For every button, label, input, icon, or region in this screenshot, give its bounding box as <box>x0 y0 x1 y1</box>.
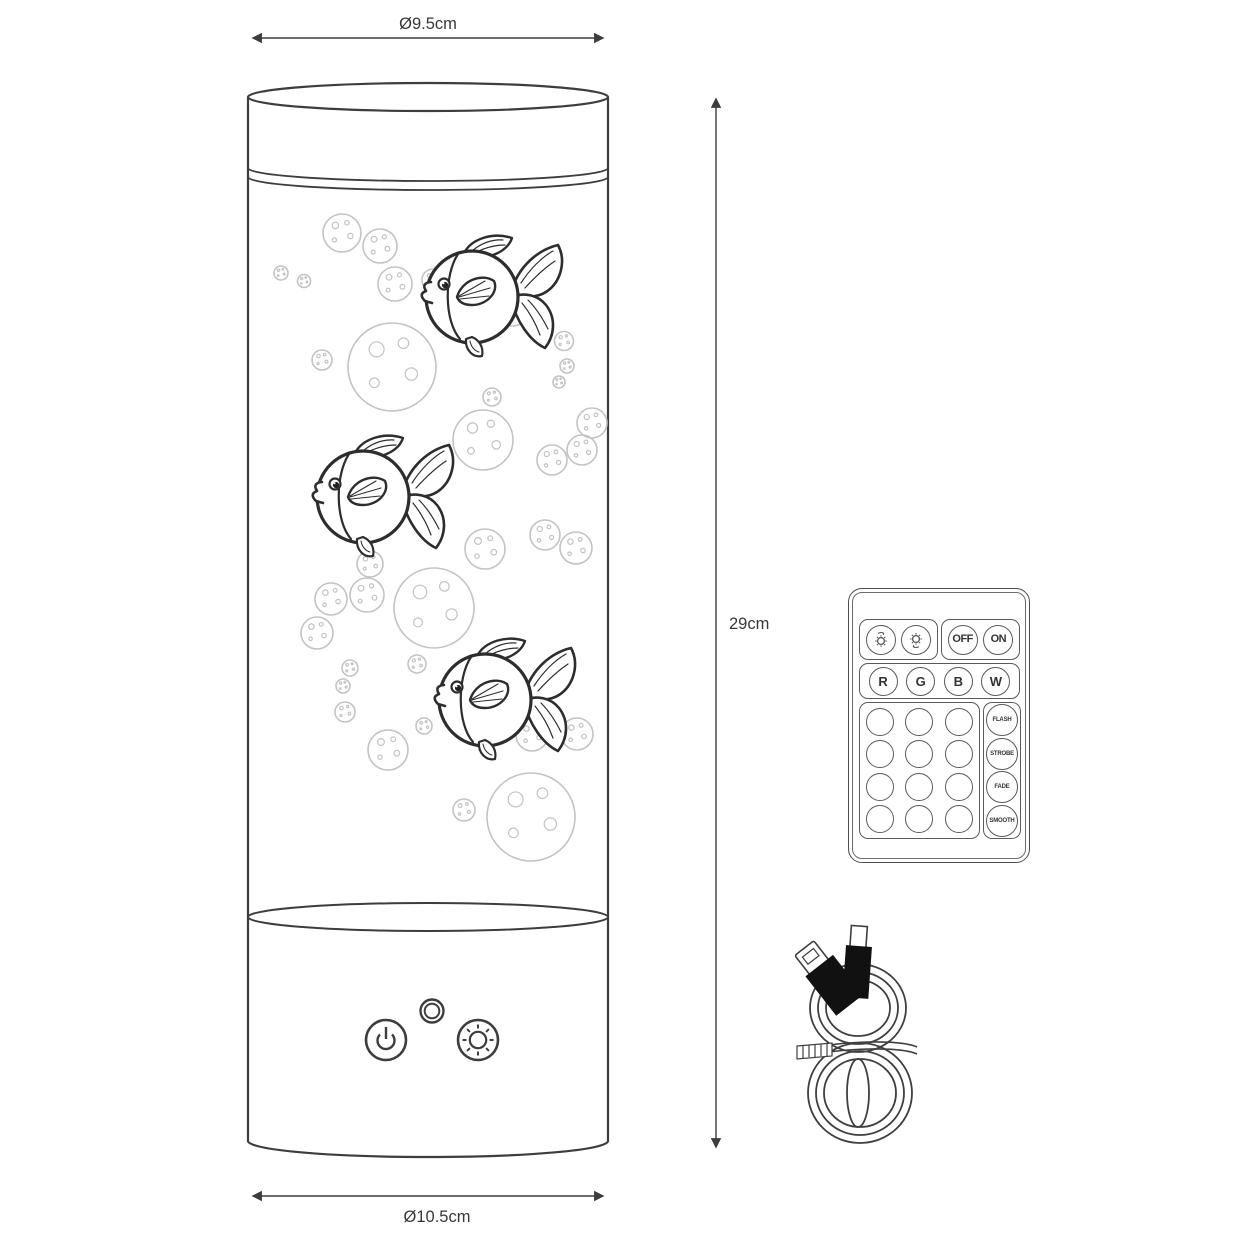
green-button-label: G <box>916 675 926 688</box>
blue-button: B <box>944 667 973 696</box>
color-shade-button <box>866 773 894 801</box>
remote-power-group: OFF ON <box>941 619 1020 660</box>
lamp-tube <box>248 83 608 1141</box>
line-art-layer: Ø9.5cm 29cm Ø10.5cm <box>0 0 1240 1240</box>
white-button-label: W <box>990 675 1002 688</box>
smooth-button-label: SMOOTH <box>989 818 1014 824</box>
dimension-top-diameter: Ø9.5cm <box>253 15 603 38</box>
dimension-bottom-diameter: Ø10.5cm <box>253 1196 603 1226</box>
color-shade-button <box>905 805 933 833</box>
top-diameter-label: Ø9.5cm <box>399 15 457 33</box>
base-bottom-edge <box>248 1141 608 1157</box>
color-shade-button <box>945 740 973 768</box>
smooth-button: SMOOTH <box>986 805 1018 837</box>
base-top-edge <box>248 903 608 931</box>
sun-up-icon <box>871 630 891 650</box>
color-shade-button <box>945 805 973 833</box>
lamp-top-lid <box>248 83 608 111</box>
brightness-up-button <box>866 625 896 655</box>
red-button: R <box>869 667 898 696</box>
remote-effects-column: FLASH STROBE FADE SMOOTH <box>983 702 1021 839</box>
on-button-label: ON <box>991 634 1007 645</box>
color-shade-button <box>945 773 973 801</box>
white-button: W <box>981 667 1010 696</box>
usb-cable-icon <box>795 925 917 1143</box>
red-button-label: R <box>878 675 887 688</box>
remote-brightness-group <box>859 619 938 660</box>
sun-down-icon <box>906 630 926 650</box>
color-shade-button <box>905 773 933 801</box>
green-button: G <box>906 667 935 696</box>
fish-icon <box>313 436 453 557</box>
color-shade-button <box>905 740 933 768</box>
dc-connector-icon <box>842 925 873 999</box>
color-shade-button <box>866 805 894 833</box>
color-shade-button <box>866 708 894 736</box>
color-shade-button <box>905 708 933 736</box>
lamp-cap-rim-2 <box>248 177 608 190</box>
on-button: ON <box>983 625 1013 655</box>
fade-button: FADE <box>986 771 1018 803</box>
remote-color-row: R G B W <box>859 663 1020 699</box>
brightness-down-button <box>901 625 931 655</box>
lamp-base <box>248 903 608 1157</box>
flash-button: FLASH <box>986 704 1018 736</box>
power-button-icon <box>366 1020 406 1060</box>
sun-button-icon <box>458 1020 498 1060</box>
height-label: 29cm <box>729 615 769 633</box>
off-button: OFF <box>948 625 978 655</box>
bottom-diameter-label: Ø10.5cm <box>404 1208 471 1226</box>
blue-button-label: B <box>954 675 963 688</box>
color-shade-button <box>945 708 973 736</box>
led-ring-icon <box>421 1000 444 1023</box>
fade-button-label: FADE <box>994 784 1009 790</box>
remote-color-grid <box>859 702 980 839</box>
tie-end <box>797 1043 832 1059</box>
dimension-height: 29cm <box>716 99 769 1147</box>
fish-icon <box>422 236 562 357</box>
strobe-button: STROBE <box>986 738 1018 770</box>
off-button-label: OFF <box>952 634 973 645</box>
lamp-cap-rim <box>248 168 608 181</box>
remote-control: OFF ON R G B W <box>848 588 1030 863</box>
flash-button-label: FLASH <box>993 717 1012 723</box>
color-shade-button <box>866 740 894 768</box>
product-diagram: Ø9.5cm 29cm Ø10.5cm <box>0 0 1240 1240</box>
strobe-button-label: STROBE <box>990 751 1014 757</box>
fish-icon <box>435 639 575 760</box>
